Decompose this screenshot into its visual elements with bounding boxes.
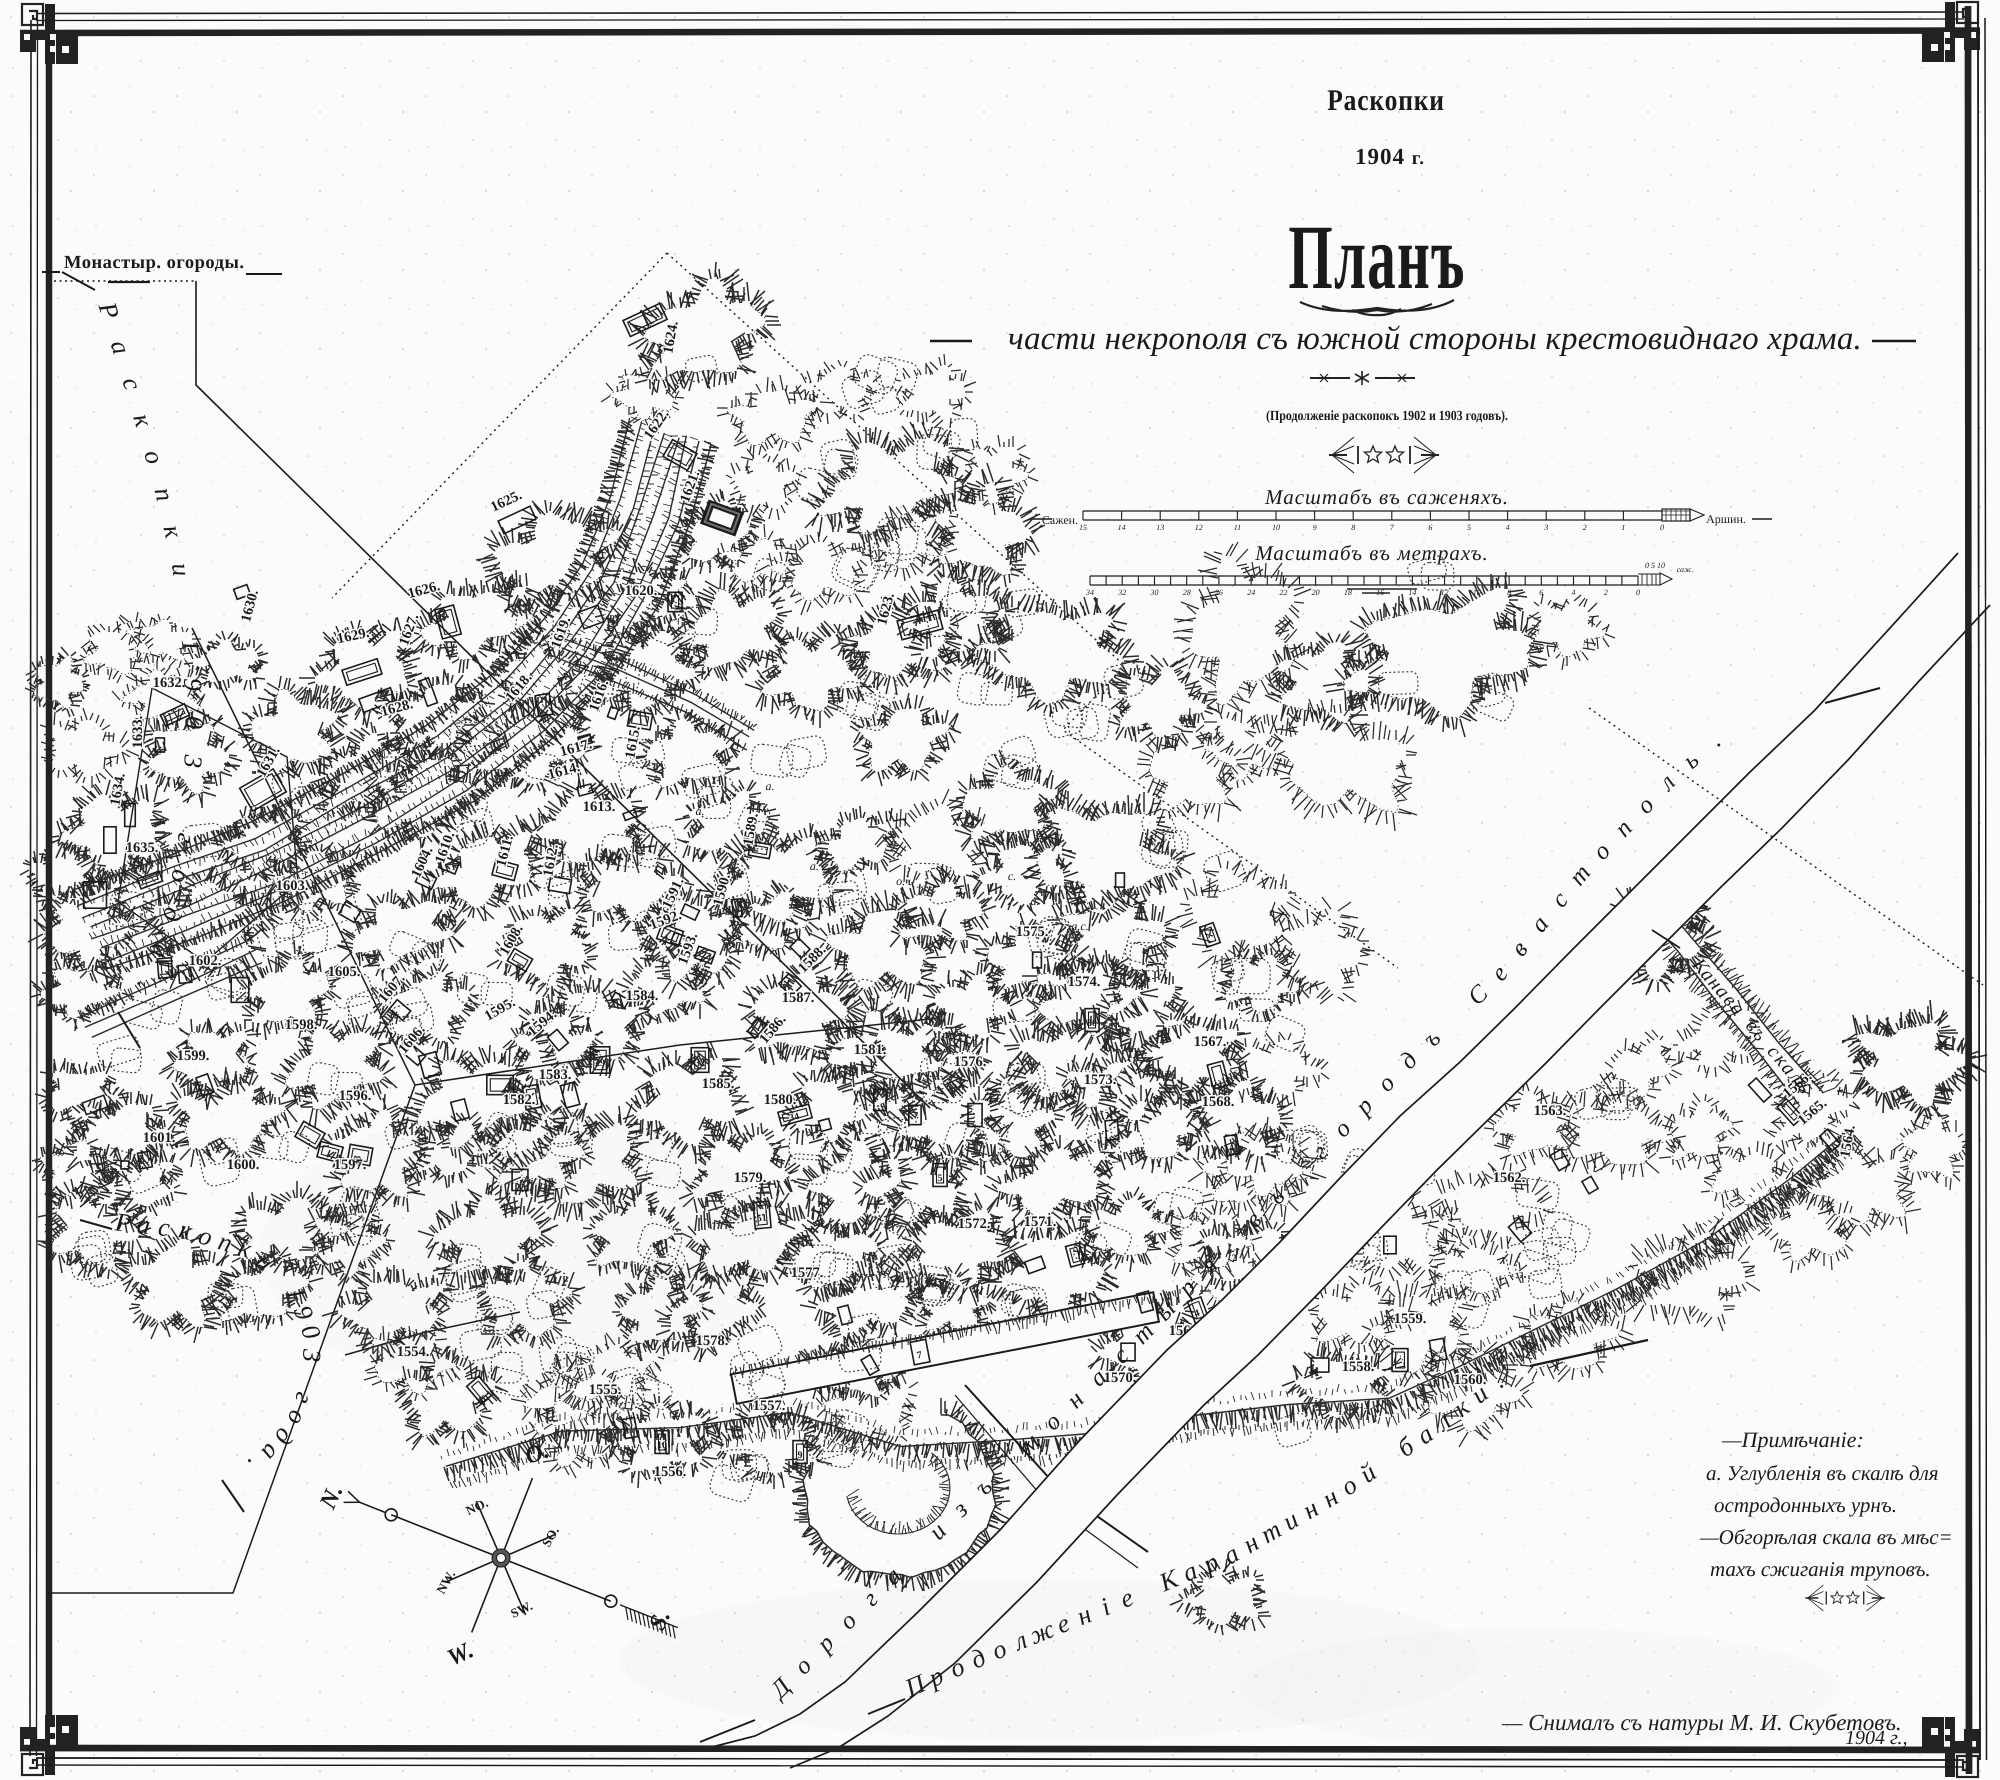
- svg-text:1583.: 1583.: [539, 1067, 572, 1083]
- svg-text:30: 30: [1150, 588, 1159, 597]
- svg-text:1602.: 1602.: [189, 953, 222, 969]
- svg-text:32: 32: [1117, 588, 1126, 597]
- svg-text:20: 20: [1312, 588, 1320, 597]
- svg-text:а.: а.: [766, 779, 775, 793]
- svg-text:3: 3: [297, 1348, 327, 1363]
- svg-text:15: 15: [1079, 523, 1087, 532]
- svg-text:Раскопки: Раскопки: [1327, 84, 1445, 117]
- svg-text:1575.: 1575.: [1016, 924, 1049, 940]
- svg-text:34: 34: [1085, 588, 1094, 597]
- svg-text:1577.: 1577.: [791, 1265, 824, 1281]
- svg-text:Р: Р: [113, 1207, 133, 1238]
- svg-text:0: 0: [1660, 523, 1664, 532]
- svg-text:1556.: 1556.: [654, 1464, 687, 1480]
- svg-text:1599.: 1599.: [177, 1048, 210, 1064]
- svg-text:14: 14: [1118, 523, 1126, 532]
- svg-text:5: 5: [938, 1173, 943, 1184]
- svg-text:1572.: 1572.: [958, 1216, 991, 1232]
- svg-text:1601.: 1601.: [143, 1130, 176, 1146]
- svg-text:1584.: 1584.: [626, 988, 659, 1004]
- svg-text:1603.: 1603.: [276, 878, 309, 894]
- svg-text:1558.: 1558.: [1342, 1359, 1375, 1375]
- svg-text:а. Углубленія въ скалѣ для: а. Углубленія въ скалѣ для: [1706, 1461, 1939, 1485]
- svg-text:30: 30: [1087, 1018, 1097, 1029]
- svg-text:1574.: 1574.: [1068, 974, 1101, 990]
- svg-text:1585.: 1585.: [702, 1076, 735, 1092]
- svg-text:1576.: 1576.: [954, 1054, 987, 1070]
- svg-text:о.ч.: о.ч.: [896, 874, 914, 888]
- svg-text:—Обгорѣлая скала въ мѣс=: —Обгорѣлая скала въ мѣс=: [1699, 1525, 1953, 1549]
- svg-text:1571.: 1571.: [1024, 1214, 1057, 1230]
- svg-text:Аршин.: Аршин.: [1706, 512, 1746, 526]
- svg-text:1563.: 1563.: [1534, 1103, 1567, 1119]
- svg-text:1620.: 1620.: [625, 583, 658, 599]
- svg-text:11: 11: [1234, 523, 1241, 532]
- svg-text:с.: с.: [741, 849, 749, 863]
- svg-text:0: 0: [179, 716, 208, 730]
- svg-text:1633.: 1633.: [130, 716, 146, 749]
- svg-text:Масштабъ въ метрахъ.: Масштабъ въ метрахъ.: [1254, 541, 1489, 565]
- svg-text:13: 13: [1156, 523, 1164, 532]
- svg-text:1562.: 1562.: [1493, 1170, 1526, 1186]
- svg-text:1904 г.,: 1904 г.,: [1845, 1727, 1908, 1749]
- svg-text:1557.: 1557.: [753, 1398, 786, 1414]
- svg-text:2: 2: [1583, 523, 1587, 532]
- svg-text:саж.: саж.: [1677, 565, 1694, 574]
- svg-text:1581.: 1581.: [854, 1042, 887, 1058]
- svg-text:—Примѣчаніе:: —Примѣчаніе:: [1721, 1427, 1864, 1452]
- svg-text:32: 32: [695, 1058, 705, 1069]
- svg-text:1598.: 1598.: [285, 1017, 318, 1033]
- svg-text:а.: а.: [1031, 894, 1040, 908]
- svg-text:9: 9: [1313, 523, 1317, 532]
- svg-text:а. с.: а. с.: [810, 859, 830, 873]
- svg-text:1559.: 1559.: [1394, 1311, 1427, 1327]
- svg-text:Масштабъ въ саженяхъ.: Масштабъ въ саженяхъ.: [1264, 485, 1509, 509]
- svg-text:с.: с.: [1008, 869, 1016, 883]
- svg-text:12: 12: [1195, 523, 1203, 532]
- svg-text:(Продолженіе раскопокъ 1902 и: (Продолженіе раскопокъ 1902 и 1903 годов…: [1266, 409, 1508, 424]
- svg-text:11: 11: [624, 1424, 635, 1436]
- svg-text:1904 г.: 1904 г.: [1355, 144, 1425, 169]
- svg-text:части некрополя съ южной сторо: части некрополя съ южной стороны крестов…: [1008, 321, 1862, 357]
- svg-text:5: 5: [1467, 523, 1471, 532]
- svg-text:28: 28: [1183, 588, 1191, 597]
- svg-text:0: 0: [1636, 588, 1640, 597]
- svg-text:29: 29: [595, 1058, 605, 1069]
- svg-text:1: 1: [1621, 523, 1625, 532]
- svg-text:1580.: 1580.: [764, 1092, 797, 1108]
- svg-text:1573.: 1573.: [1084, 1072, 1117, 1088]
- svg-text:9: 9: [178, 677, 207, 691]
- svg-text:а.: а.: [696, 804, 705, 818]
- svg-text:1600.: 1600.: [227, 1157, 260, 1173]
- svg-text:3: 3: [1543, 523, 1548, 532]
- svg-text:1613.: 1613.: [583, 799, 616, 815]
- svg-text:Сажен.: Сажен.: [1042, 513, 1078, 527]
- svg-text:1568.: 1568.: [1202, 1094, 1235, 1110]
- svg-text:1555.: 1555.: [589, 1382, 622, 1398]
- svg-text:22: 22: [1279, 588, 1287, 597]
- svg-text:1635.: 1635.: [126, 840, 159, 856]
- svg-text:о.ч.: о.ч.: [1121, 884, 1139, 898]
- svg-text:24: 24: [1247, 588, 1255, 597]
- svg-text:а.с.: а.с.: [1071, 919, 1088, 933]
- svg-text:2: 2: [1604, 588, 1608, 597]
- svg-text:1587.: 1587.: [782, 990, 815, 1006]
- svg-text:1605.: 1605.: [328, 964, 361, 980]
- svg-text:10: 10: [657, 1440, 667, 1451]
- svg-text:6: 6: [1428, 523, 1432, 532]
- svg-text:8: 8: [1351, 523, 1355, 532]
- svg-text:Монастыр. огороды.: Монастыр. огороды.: [64, 253, 245, 273]
- svg-text:1596.: 1596.: [339, 1088, 372, 1104]
- svg-text:Планъ: Планъ: [1288, 206, 1465, 308]
- svg-text:остродонныхъ урнъ.: остродонныхъ урнъ.: [1714, 1493, 1897, 1517]
- svg-text:тахъ сжиганія труповъ.: тахъ сжиганія труповъ.: [1710, 1557, 1931, 1581]
- svg-text:10: 10: [1272, 523, 1280, 532]
- svg-text:9: 9: [798, 1450, 803, 1461]
- svg-text:1582.: 1582.: [503, 1092, 536, 1108]
- svg-text:3: 3: [178, 753, 208, 769]
- svg-text:4: 4: [1572, 588, 1576, 597]
- svg-text:4: 4: [1506, 523, 1510, 532]
- svg-text:1567.: 1567.: [1194, 1034, 1227, 1050]
- svg-text:0 5 10: 0 5 10: [1645, 561, 1665, 570]
